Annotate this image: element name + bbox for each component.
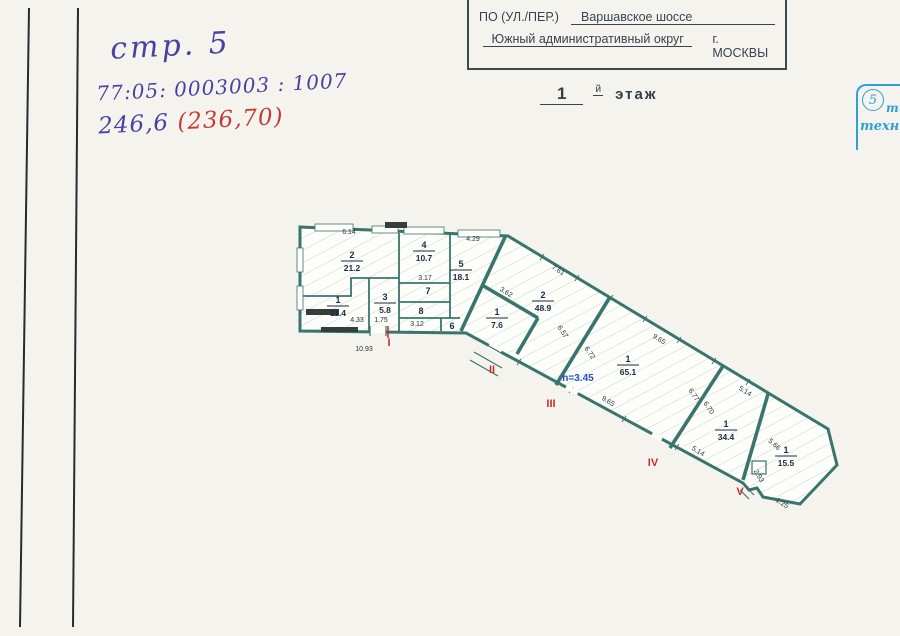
room-area: 65.1 <box>620 367 637 377</box>
section-numeral: I <box>387 337 390 349</box>
address-form: КОРП. (СТР.) № ДОМ № 36 ПО (УЛ./ПЕР.) Ва… <box>467 0 787 70</box>
handwritten-annotations: стр. 5 77:05: 0003003 : 1007 246,6 (236,… <box>93 20 349 140</box>
street-label: ПО (УЛ./ПЕР.) <box>479 10 571 24</box>
dimension-label: 3.17 <box>418 275 432 282</box>
room-area: 18.1 <box>453 272 470 282</box>
room-number: 8 <box>418 306 423 316</box>
room-number: 1 <box>625 354 630 364</box>
dimension-label: 4.29 <box>466 236 480 243</box>
room-number: 1 <box>335 295 340 305</box>
section-numeral: IV <box>648 457 659 469</box>
room-area: 10.7 <box>416 253 433 263</box>
floor-suffix: й <box>593 84 603 96</box>
room-number: 5 <box>458 259 463 269</box>
section-numeral: II <box>489 364 495 376</box>
room-number: 3 <box>382 292 387 302</box>
dimension-label: 3.12 <box>410 321 424 328</box>
handwritten-area-red: (236,70) <box>177 104 285 136</box>
dimension-label: 6.14 <box>342 229 356 236</box>
dimension-label: 1.75 <box>374 317 388 324</box>
form-row-street: ПО (УЛ./ПЕР.) Варшавское шоссе <box>479 10 775 25</box>
form-row-district: Южный административный округ г. МОСКВЫ <box>483 32 775 60</box>
room-number: 2 <box>349 250 354 260</box>
room-number: 2 <box>540 290 545 300</box>
scanned-floor-plan-page: 221.2410.7518.1111.435.8786248.917.6165.… <box>0 0 900 636</box>
room-area: 21.2 <box>344 263 361 273</box>
room-number: 6 <box>449 321 454 331</box>
building: 221.2410.7518.1111.435.8786248.917.6165.… <box>297 222 837 510</box>
room-number: 1 <box>494 307 499 317</box>
handwritten-area-blue: 246,6 <box>98 110 170 140</box>
form-row-clipped: КОРП. (СТР.) № ДОМ № 36 <box>479 0 775 3</box>
room-area: 15.5 <box>778 458 795 468</box>
stamp-text-1: ти <box>886 101 900 115</box>
height-note: h=3.45 <box>562 373 594 384</box>
floor-number: 1 <box>540 84 583 105</box>
dimension-label: 10.93 <box>355 346 373 353</box>
city-value: г. МОСКВЫ <box>712 32 775 60</box>
stamp-number: 5 <box>862 89 884 111</box>
room-number: 1 <box>723 419 728 429</box>
room-area: 7.6 <box>491 320 503 330</box>
room-area: 34.4 <box>718 432 735 442</box>
room-number: 1 <box>783 445 788 455</box>
handwritten-cadastral-number: 77:05: 0003003 : 1007 <box>96 68 348 105</box>
floor-title: 1 й этаж <box>540 84 657 105</box>
section-numeral: V <box>736 486 744 498</box>
room-number: 7 <box>425 286 430 296</box>
room-area: 5.8 <box>379 305 391 315</box>
room-number: 4 <box>421 240 426 250</box>
dimension-label: 4.33 <box>350 317 364 324</box>
room-area: 11.4 <box>330 308 346 318</box>
street-value: Варшавское шоссе <box>571 10 775 25</box>
district-value: Южный административный округ <box>483 32 692 47</box>
stamp: 5 ти техн <box>856 84 900 150</box>
floor-word: этаж <box>615 86 657 103</box>
scan-edge-lines <box>20 8 78 627</box>
section-numeral: III <box>546 398 555 410</box>
room-area: 48.9 <box>535 303 552 313</box>
stamp-text-2: техн <box>860 119 899 134</box>
